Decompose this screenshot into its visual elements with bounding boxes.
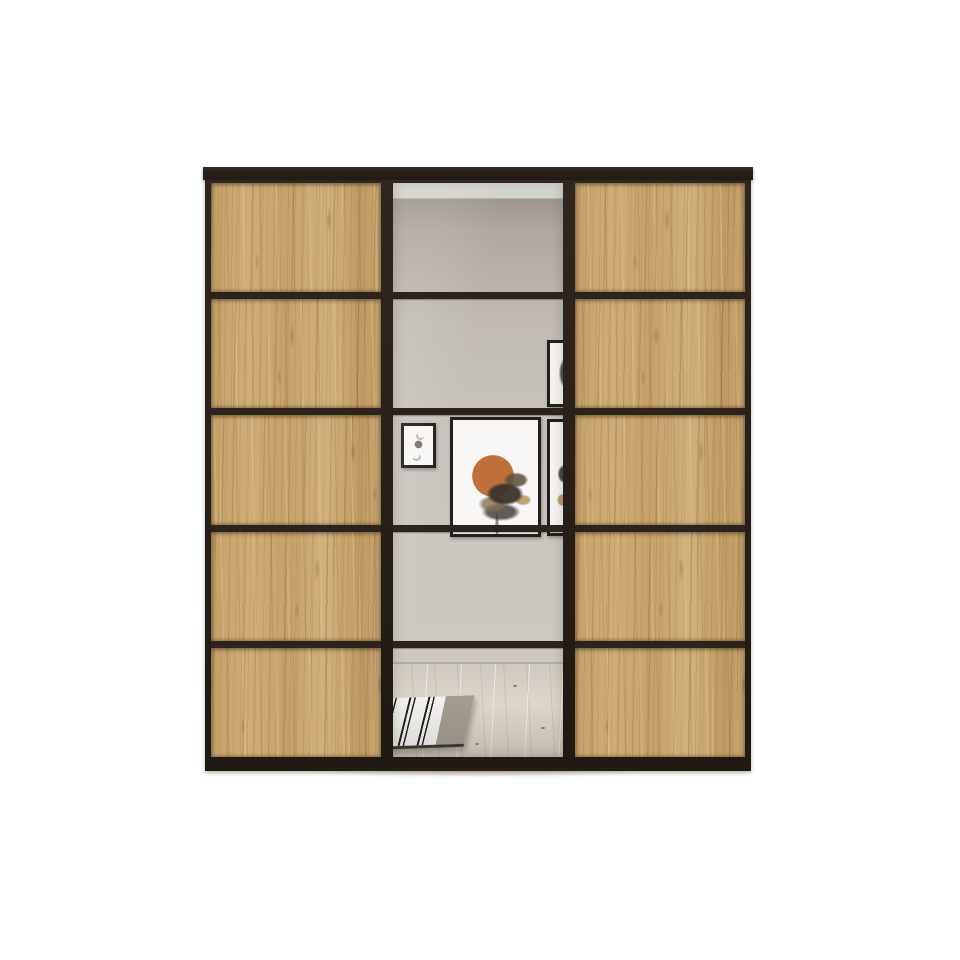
oak-panel (575, 299, 745, 408)
oak-panel (575, 415, 745, 524)
wardrobe-door-left (205, 180, 387, 771)
door-divider (393, 525, 563, 532)
door-divider (211, 525, 381, 532)
product-photo-canvas: ☽ ● ☾ (0, 0, 960, 960)
oak-panel (211, 648, 381, 757)
door-divider (211, 292, 381, 299)
oak-panel (575, 532, 745, 641)
wardrobe-top-rail (203, 167, 753, 180)
door-divider (575, 292, 745, 299)
door-divider (393, 292, 563, 299)
door-divider (393, 408, 563, 415)
door-divider (575, 408, 745, 415)
wardrobe-doors: ☽ ● ☾ (205, 180, 751, 771)
door-divider (393, 641, 563, 648)
mirror-reflection: ☽ ● ☾ (393, 183, 563, 757)
door-divider (211, 408, 381, 415)
wardrobe-door-right (569, 180, 751, 771)
door-divider (211, 641, 381, 648)
oak-panel (575, 648, 745, 757)
oak-panel (211, 415, 381, 524)
door-divider (575, 525, 745, 532)
oak-panel (575, 183, 745, 292)
oak-panel (211, 299, 381, 408)
oak-panel (211, 532, 381, 641)
floor-shadow (198, 768, 758, 782)
oak-panel (211, 183, 381, 292)
wardrobe: ☽ ● ☾ (205, 167, 751, 771)
mirror-sheen (393, 183, 563, 757)
door-divider (575, 641, 745, 648)
wardrobe-door-middle: ☽ ● ☾ (387, 180, 569, 771)
